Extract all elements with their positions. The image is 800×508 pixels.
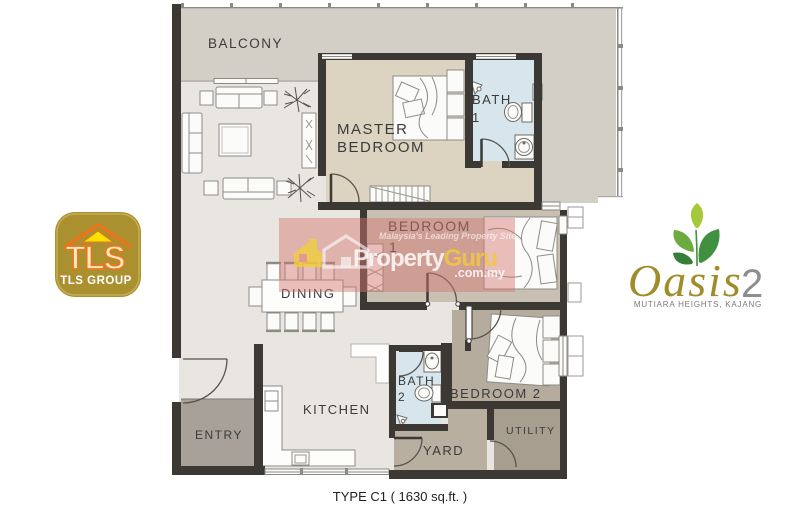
svg-text:BALCONY: BALCONY — [208, 36, 283, 51]
svg-text:BEDROOM: BEDROOM — [337, 139, 425, 156]
svg-text:1: 1 — [472, 110, 481, 125]
svg-text:BEDROOM 2: BEDROOM 2 — [450, 386, 542, 401]
svg-text:YARD: YARD — [423, 443, 464, 458]
svg-text:TYPE C1 ( 1630 sq.ft. ): TYPE C1 ( 1630 sq.ft. ) — [333, 489, 467, 504]
svg-text:Oasis: Oasis — [628, 255, 743, 306]
svg-text:BATH: BATH — [472, 92, 512, 107]
svg-text:.com.my: .com.my — [454, 266, 505, 280]
svg-text:MUTIARA HEIGHTS, KAJANG: MUTIARA HEIGHTS, KAJANG — [634, 300, 762, 309]
svg-text:Malaysia's Leading Property Si: Malaysia's Leading Property Site — [379, 231, 516, 241]
svg-text:TLS: TLS — [65, 239, 124, 276]
svg-text:2: 2 — [398, 390, 406, 404]
svg-text:UTILITY: UTILITY — [506, 425, 556, 437]
svg-text:KITCHEN: KITCHEN — [303, 402, 371, 417]
svg-text:MASTER: MASTER — [337, 121, 409, 138]
svg-text:ENTRY: ENTRY — [195, 428, 243, 442]
svg-text:TLS GROUP: TLS GROUP — [60, 275, 132, 287]
